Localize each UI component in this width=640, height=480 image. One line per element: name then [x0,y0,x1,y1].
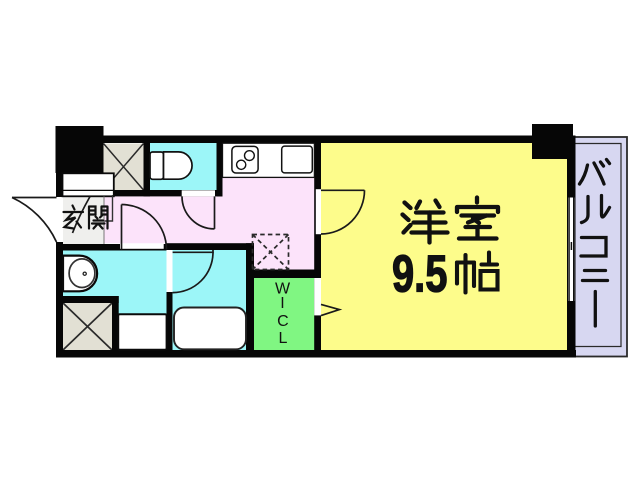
svg-text:C: C [277,313,289,330]
svg-text:9.5: 9.5 [392,244,447,302]
svg-text:I: I [280,295,284,312]
svg-text:L: L [278,330,287,347]
